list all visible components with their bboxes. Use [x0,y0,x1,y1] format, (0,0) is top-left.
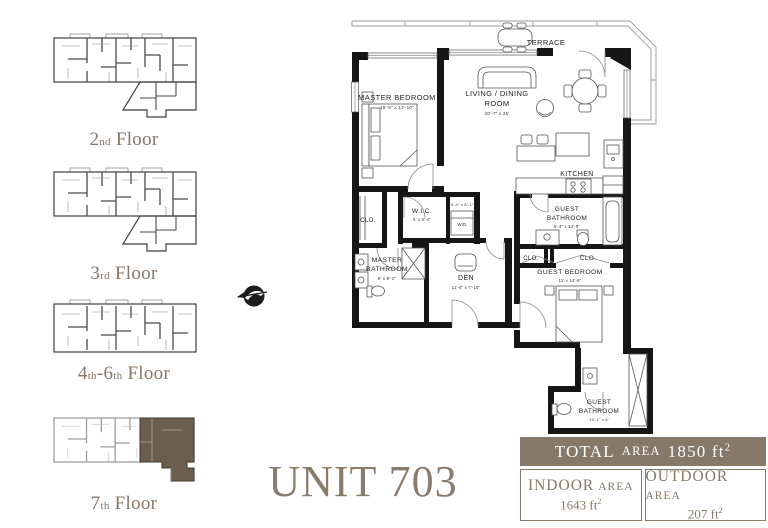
dining-table [564,70,606,112]
closet-right-label: CLO. [580,255,597,262]
indoor-area-cell: INDOOR AREA 1643 ft2 [520,469,642,521]
mini-plan-3rd-floor [44,158,204,258]
master-bathroom-label: MASTER [372,257,403,264]
living-sofa [478,67,536,88]
floor-label-3rd: 3rdFloor [44,263,204,285]
compass-north-arrow-icon [236,281,270,311]
unit-703-floor-plan: TERRACE MASTER BEDROOM 16'-5" x 12'-10" … [338,8,738,448]
total-word: TOTAL [555,442,615,462]
floor-label-2nd: 2ndFloor [44,129,204,151]
svg-text:15'-1" x 6': 15'-1" x 6' [589,417,609,422]
svg-text:11' x 14'-8": 11' x 14'-8" [559,278,582,283]
outdoor-area-value: 207 ft2 [688,506,723,522]
washer-dryer-label: W/D [457,222,466,227]
svg-text:ROOM: ROOM [485,99,510,108]
indoor-area-label: INDOOR AREA [528,477,634,495]
guest-bedroom-label: GUEST BEDROOM [537,269,603,276]
floor-label-7th: 7thFloor [44,493,204,515]
svg-text:20'-7" x 25': 20'-7" x 25' [485,111,510,116]
laundry-dims: 4'-4" x 6'-1" [451,202,474,207]
wic-label: W.I.C. [412,208,432,215]
master-bedroom-label: MASTER BEDROOM [358,93,436,102]
svg-text:BATHROOM: BATHROOM [579,408,619,415]
guest-bathroom-upper-label: GUEST [555,206,579,213]
guest-bathroom-lower-label: GUEST [587,399,611,406]
floor-selector-7th[interactable]: 7thFloor [44,408,204,515]
svg-text:BATHROOM: BATHROOM [547,215,587,222]
mini-plan-4th-6th-floor [44,296,204,358]
unit-703-highlight [140,418,194,481]
svg-text:16'-5" x 12'-10": 16'-5" x 12'-10" [380,105,414,110]
outdoor-area-label: OUTDOOR AREA [646,468,766,504]
floor-selector-2nd[interactable]: 2ndFloor [44,24,204,151]
den-label: DEN [458,275,474,282]
unit-title: UNIT 703 [247,456,479,507]
floorplan-page: { "title": { "unit": "UNIT 703" }, "side… [0,0,768,528]
floor-selector-3rd[interactable]: 3rdFloor [44,158,204,285]
closet-left-label: CLO. [523,256,539,262]
kitchen-fixtures [516,133,623,194]
svg-text:8' x 9'-2": 8' x 9'-2" [378,276,397,281]
outdoor-area-cell: OUTDOOR AREA 207 ft2 [645,469,767,521]
lounge-chair [537,100,554,117]
svg-text:11'-6" x 7'-10": 11'-6" x 7'-10" [452,285,481,290]
guest-bed [545,286,613,342]
floor-label-4th-6th: 4th-6thFloor [44,363,204,385]
mini-plan-2nd-floor [44,24,204,124]
den-chair [455,254,476,271]
living-dining-label: LIVING / DINING [465,89,528,98]
master-closet-label: CLO. [360,218,376,224]
indoor-area-value: 1643 ft2 [560,497,601,513]
kitchen-label: KITCHEN [560,171,594,178]
svg-text:6' x 6'-4": 6' x 6'-4" [413,217,431,222]
total-area-header: TOTAL AREA 1850 ft2 [520,437,766,466]
area-table: TOTAL AREA 1850 ft2 INDOOR AREA 1643 ft2… [520,437,766,521]
total-area-value: 1850 ft2 [668,442,732,462]
terrace-label: TERRACE [527,38,566,47]
mini-plan-7th-floor [44,408,204,488]
svg-text:5'-4" x 14'-8": 5'-4" x 14'-8" [554,224,581,229]
floor-selector-4th-6th[interactable]: 4th-6thFloor [44,296,204,385]
svg-text:BATHROOM: BATHROOM [366,266,408,273]
